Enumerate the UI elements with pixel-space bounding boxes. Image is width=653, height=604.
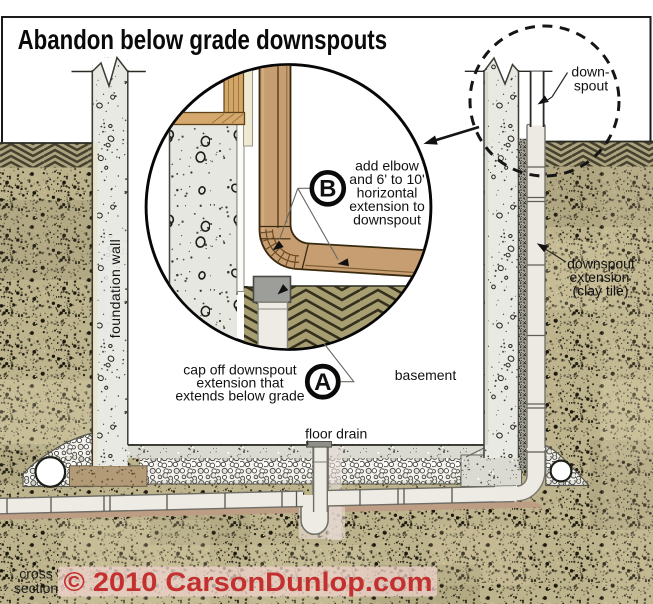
- svg-text:extends below grade: extends below grade: [175, 387, 304, 403]
- svg-text:floor drain: floor drain: [305, 426, 367, 442]
- svg-text:section: section: [14, 580, 58, 596]
- svg-text:basement: basement: [395, 367, 457, 383]
- svg-text:© 2010 CarsonDunlop.com: © 2010 CarsonDunlop.com: [64, 567, 433, 597]
- svg-text:downspout: downspout: [353, 212, 421, 228]
- svg-text:spout: spout: [574, 78, 608, 94]
- svg-text:foundation wall: foundation wall: [107, 239, 123, 338]
- svg-text:B: B: [319, 175, 336, 202]
- svg-text:A: A: [314, 369, 331, 396]
- svg-text:(clay tile): (clay tile): [572, 283, 628, 299]
- svg-text:Abandon below grade downspouts: Abandon below grade downspouts: [18, 24, 388, 55]
